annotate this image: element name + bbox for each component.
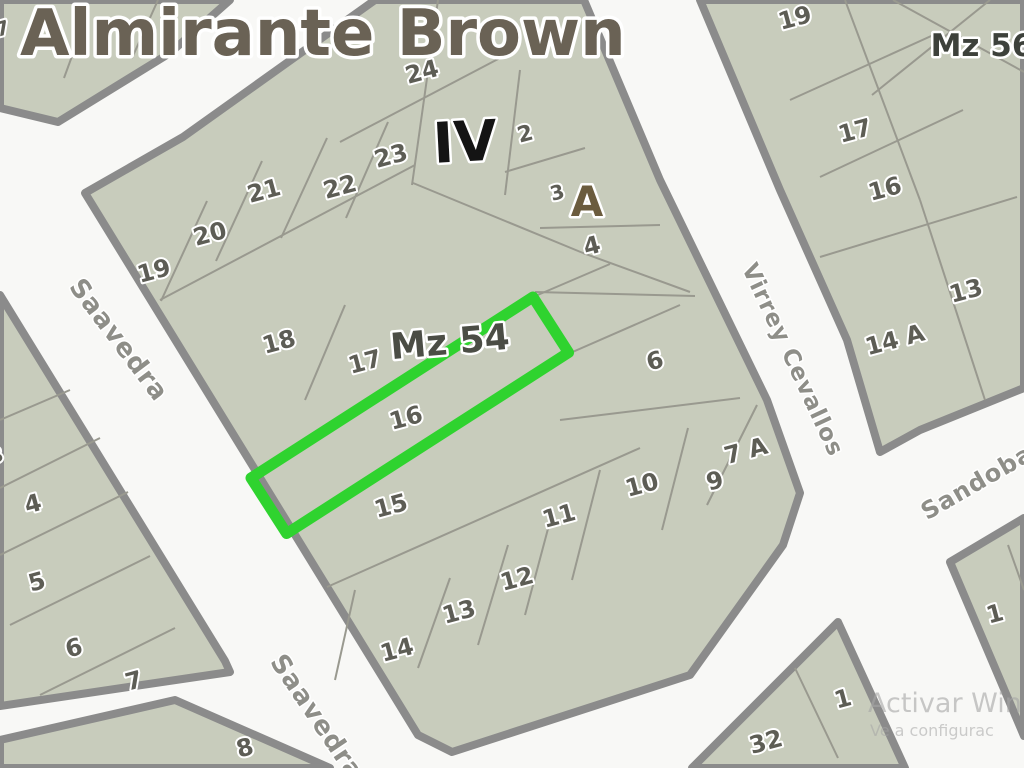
map-title: Almirante Brown — [20, 0, 626, 71]
cadastral-map-canvas: 24232221201918171615141312111097 A643219… — [0, 0, 1024, 768]
block-label-Mz-56: Mz 56 — [931, 28, 1024, 64]
watermark-line2: Ve a configurac — [870, 721, 994, 740]
block-southwest-corner — [0, 700, 330, 768]
watermark-line1: Activar Win — [868, 688, 1022, 719]
block-label-A: A — [571, 177, 604, 226]
street-label-sandobal: Sandobal — [916, 434, 1024, 525]
listing-map-image: 24232221201918171615141312111097 A643219… — [0, 0, 1024, 768]
block-label-IV: IV — [431, 109, 499, 177]
